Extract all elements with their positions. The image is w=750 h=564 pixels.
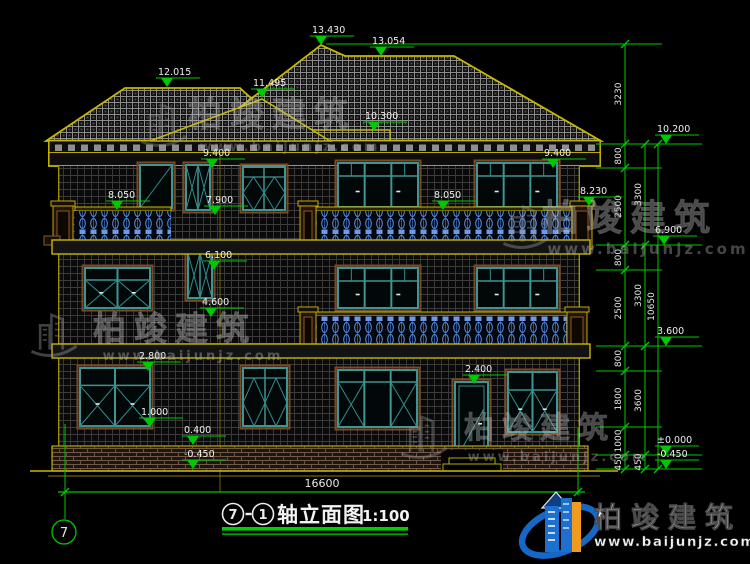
balcony-railing — [316, 312, 568, 345]
watermark-url: www.baijunjz.com — [200, 140, 381, 155]
svg-text:8.230: 8.230 — [580, 186, 607, 197]
watermark-url: www.baijunjz.com — [547, 240, 748, 258]
logo-tower-right — [561, 498, 572, 552]
window — [336, 161, 421, 210]
window — [241, 165, 288, 213]
svg-text:10.200: 10.200 — [657, 124, 690, 135]
title-block: 7 1 轴立面图 1:100 — [222, 503, 410, 535]
logo-tower-left — [545, 506, 559, 552]
watermark-url: www.baijunjz.com — [103, 349, 284, 364]
watermark-brand: 柏竣建筑 — [542, 198, 718, 239]
balcony-railing — [75, 207, 171, 240]
logo-tower-face — [572, 502, 581, 552]
svg-text:-0.450: -0.450 — [184, 449, 215, 460]
watermark-brand: 柏竣建筑 — [188, 95, 356, 135]
svg-text:1.000: 1.000 — [141, 407, 168, 418]
window — [336, 368, 420, 430]
window — [138, 163, 175, 211]
dim-chain-value: 3230 — [614, 82, 624, 105]
drawing-title: 轴立面图 — [277, 503, 365, 527]
svg-text:12.015: 12.015 — [158, 67, 191, 78]
logo-url-text: www.baijunjz.com — [594, 534, 750, 550]
svg-text:4.600: 4.600 — [202, 297, 229, 308]
logo-brand-text: 柏竣建筑 — [594, 501, 742, 534]
svg-text:11.495: 11.495 — [253, 78, 286, 89]
dim-chain-value: 3300 — [634, 284, 644, 307]
svg-text:13.054: 13.054 — [372, 36, 405, 47]
brand-logo: 柏竣建筑 www.baijunjz.com — [515, 492, 750, 564]
axis-bubble: 7 — [52, 520, 76, 544]
dim-chain-value: 3600 — [634, 389, 644, 412]
window — [83, 266, 153, 311]
svg-text:7.900: 7.900 — [206, 195, 233, 206]
axis-start-number: 7 — [228, 508, 237, 523]
axis-end-number: 1 — [258, 508, 267, 523]
elevation-marker: 13.430 — [310, 25, 354, 45]
window — [78, 366, 153, 429]
svg-text:-0.450: -0.450 — [657, 449, 688, 460]
elevation-marker: 13.054 — [370, 36, 414, 56]
entry-step-1 — [443, 464, 501, 471]
cad-canvas: 16600 3230800250080025008001800100045033… — [0, 0, 750, 564]
elevation-drawing: 16600 3230800250080025008001800100045033… — [0, 0, 750, 564]
svg-text:13.430: 13.430 — [312, 25, 345, 36]
title-underline-thick — [222, 527, 408, 531]
title-underline-thin — [222, 534, 408, 535]
window — [475, 266, 560, 311]
watermark-brand: 柏竣建筑 — [93, 309, 257, 348]
ground-lines — [30, 471, 618, 476]
dim-chain-value: 10650 — [647, 292, 657, 321]
svg-text:0.400: 0.400 — [184, 425, 211, 436]
dim-chain-value: 800 — [614, 147, 624, 164]
elevation-marker: 12.015 — [156, 67, 200, 87]
window — [336, 266, 421, 311]
bottom-dim-value: 16600 — [305, 477, 340, 490]
dim-chain-value: 800 — [614, 350, 624, 367]
svg-text:6.100: 6.100 — [205, 250, 232, 261]
svg-text:8.050: 8.050 — [108, 190, 135, 201]
dim-chain-value: 1800 — [614, 387, 624, 410]
watermark-brand: 柏竣建筑 — [464, 411, 616, 446]
drawing-scale: 1:100 — [362, 507, 410, 525]
elevation-marker: 3.600 — [655, 326, 699, 346]
watermark-url: www.baijunjz.com — [468, 450, 649, 465]
dim-chain-value: 2500 — [614, 296, 624, 319]
svg-text:8.050: 8.050 — [434, 190, 461, 201]
svg-text:9.400: 9.400 — [544, 148, 571, 159]
svg-text:3.600: 3.600 — [657, 326, 684, 337]
window — [241, 366, 290, 429]
svg-text:10.300: 10.300 — [365, 111, 398, 122]
axis-bubble-number: 7 — [60, 526, 68, 541]
svg-text:±0.000: ±0.000 — [657, 435, 692, 446]
svg-text:2.400: 2.400 — [465, 364, 492, 375]
